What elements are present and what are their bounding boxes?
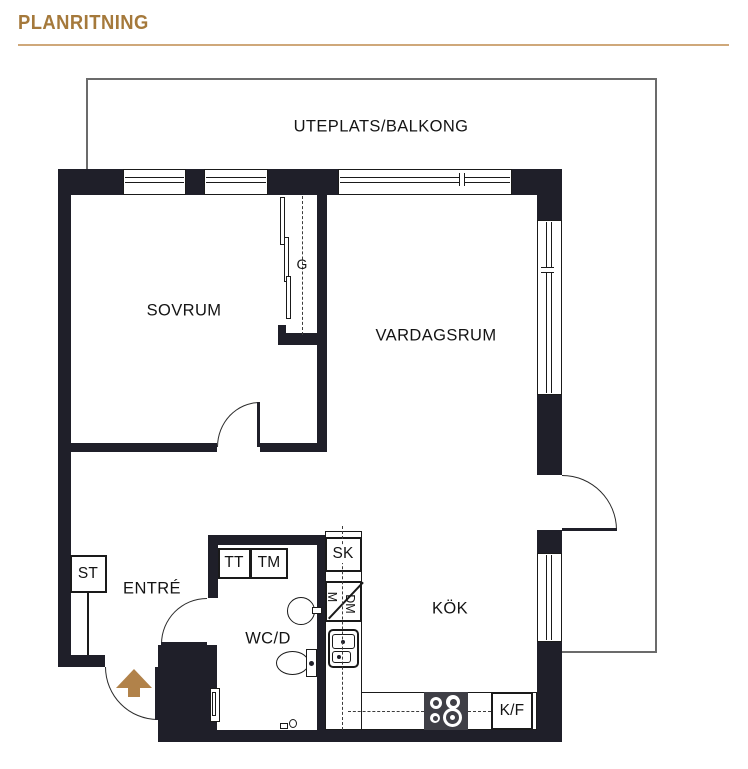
window-glass-line	[206, 177, 266, 178]
stove-burner-ring	[433, 716, 438, 721]
wc-radiator-inner	[212, 692, 216, 716]
wall-wc-left	[208, 535, 218, 598]
window-glass-line	[125, 177, 184, 178]
fixture-label-tt: TT	[224, 554, 243, 572]
wall-wc-top	[208, 535, 327, 545]
toilet-flush-dot	[309, 661, 314, 666]
window-right-1	[537, 220, 562, 395]
balcony-outline-left	[86, 78, 88, 170]
room-label-wcd: WC/D	[245, 630, 291, 649]
stove-icon	[424, 692, 468, 730]
window-glass-line	[546, 555, 547, 640]
floor-drain-icon	[289, 719, 297, 728]
washbasin-faucet-icon	[312, 607, 322, 614]
wall-divider	[317, 195, 327, 452]
entry-door-leaf	[155, 667, 158, 720]
window-mullion	[459, 173, 465, 186]
wardrobe-door-panel	[286, 276, 291, 319]
balcony-outline-right	[655, 78, 657, 653]
window-glass-line	[340, 182, 510, 183]
bedroom-door-arc	[217, 402, 260, 447]
room-label-kok: KÖK	[432, 600, 468, 619]
wc-door-arc	[161, 598, 207, 644]
wall-entry-bottom	[58, 655, 105, 667]
wall-bottom	[158, 730, 562, 742]
room-label-entre: ENTRÉ	[123, 580, 181, 599]
fixture-label-garderob: G	[296, 256, 307, 272]
wall-top-right-corner	[512, 169, 562, 195]
wall-top-pillar-2	[268, 169, 338, 195]
window-right-2	[537, 553, 562, 642]
window-glass-line	[551, 555, 552, 640]
window-top-1	[123, 169, 186, 195]
wall-entry-block	[158, 645, 217, 742]
stove-burner-center	[450, 715, 455, 720]
bedroom-door-leaf	[257, 402, 260, 447]
floor-plan-page: PLANRITNING	[0, 0, 748, 769]
wall-right-3	[537, 642, 562, 742]
fixture-label-dm: DM	[343, 594, 357, 613]
window-mullion	[541, 267, 554, 273]
closet-st-line	[87, 593, 89, 655]
toilet-bowl-icon	[276, 651, 309, 675]
entrance-arrow-stem	[128, 688, 140, 697]
balcony-outline-bottom	[562, 651, 657, 653]
fixture-label-sk: SK	[330, 545, 355, 563]
wall-top-pillar-1	[186, 169, 204, 195]
kitchen-dashed-line	[468, 711, 491, 712]
stove-burner-ring	[450, 699, 457, 706]
wall-wardrobe-tick	[278, 325, 286, 333]
balcony-door-leaf	[562, 528, 617, 531]
balcony-outline-top	[86, 78, 657, 80]
page-title: PLANRITNING	[18, 12, 149, 35]
window-glass-line	[340, 177, 510, 178]
washbasin-icon	[287, 597, 315, 625]
wall-bedroom-left	[58, 443, 217, 452]
wc-door-leaf	[161, 642, 207, 645]
floor-drain-icon	[280, 723, 288, 729]
window-glass-line	[546, 222, 547, 393]
fixture-label-kf: K/F	[500, 702, 525, 720]
title-underline	[18, 44, 729, 46]
wall-right-corner-ext	[537, 195, 562, 220]
room-label-sovrum: SOVRUM	[147, 302, 222, 321]
fixture-label-st: ST	[78, 565, 98, 583]
entrance-arrow-icon	[116, 669, 152, 688]
room-label-vardagsrum: VARDAGSRUM	[375, 327, 496, 346]
wall-right-2	[537, 530, 562, 553]
sink-faucet-dot	[337, 655, 341, 659]
balcony-door-arc	[562, 475, 617, 530]
kitchen-dashed-line	[348, 711, 424, 712]
window-top-3	[338, 169, 512, 195]
window-glass-line	[551, 222, 552, 393]
window-glass-line	[125, 182, 184, 183]
balcony-label: UTEPLATS/BALKONG	[294, 118, 469, 137]
wc-radiator-icon	[210, 688, 220, 722]
fixture-label-tm: TM	[258, 554, 281, 572]
fixture-label-m: M	[325, 592, 339, 602]
stove-burner-ring	[433, 700, 439, 706]
window-top-2	[204, 169, 268, 195]
window-glass-line	[206, 182, 266, 183]
wall-right-1	[537, 395, 562, 475]
